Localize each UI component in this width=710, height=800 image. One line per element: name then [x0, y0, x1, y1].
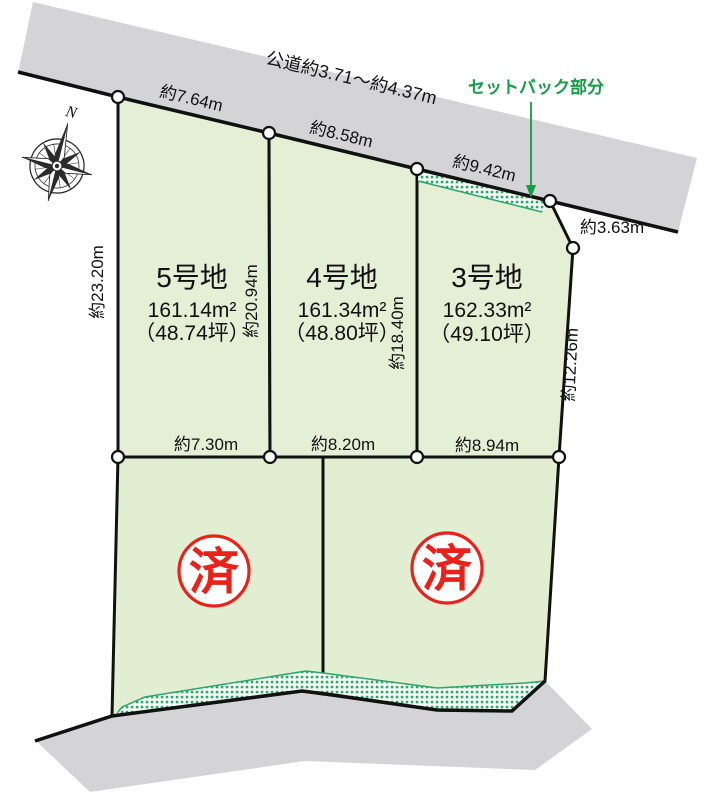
lot4-name: 4号地: [306, 262, 378, 293]
dim-bottom-lot4: 約8.20m: [311, 435, 375, 454]
vertex-marker: [553, 451, 565, 463]
vertex-marker: [411, 451, 423, 463]
lot3-name: 3号地: [451, 262, 523, 293]
sold-stamp-left: 済: [179, 536, 249, 606]
lot5-area: 161.14m²: [148, 299, 237, 322]
vertex-marker: [567, 242, 579, 254]
dim-bottom-lot3: 約8.94m: [455, 436, 519, 455]
sold-stamp-left-char: 済: [189, 544, 240, 600]
vertex-marker: [264, 451, 276, 463]
dim-corner-lot3: 約3.63m: [580, 218, 644, 237]
lot4-tsubo: （48.80坪）: [284, 322, 400, 345]
setback-label: セットバック部分: [468, 77, 604, 97]
plot-plan-diagram: N 公道約3.71～約4.37m セットバック部分 約7.64m 約8.58m …: [0, 0, 710, 800]
sold-stamp-right: 済: [412, 533, 482, 603]
vertex-marker: [544, 195, 556, 207]
compass-rose: N: [9, 103, 106, 214]
lot4-area: 161.34m²: [298, 299, 387, 322]
lot4-parcel: [269, 133, 417, 457]
vertex-marker: [263, 127, 275, 139]
plot-plan-svg: N 公道約3.71～約4.37m セットバック部分 約7.64m 約8.58m …: [0, 0, 710, 800]
lot5-name: 5号地: [156, 262, 228, 293]
vertex-marker: [112, 451, 124, 463]
vertex-marker: [411, 163, 423, 175]
compass-north-label: N: [63, 103, 80, 123]
sold-stamp-right-char: 済: [422, 541, 473, 597]
lot3-area: 162.33m²: [443, 299, 532, 322]
dim-bottom-lot5: 約7.30m: [174, 435, 238, 454]
dim-left-side: 約23.20m: [88, 245, 107, 319]
lot3-tsubo: （49.10坪）: [429, 323, 545, 346]
dim-right-side: 約12.26m: [559, 327, 582, 402]
vertex-marker: [112, 91, 124, 103]
lot5-tsubo: （48.74坪）: [134, 322, 250, 345]
